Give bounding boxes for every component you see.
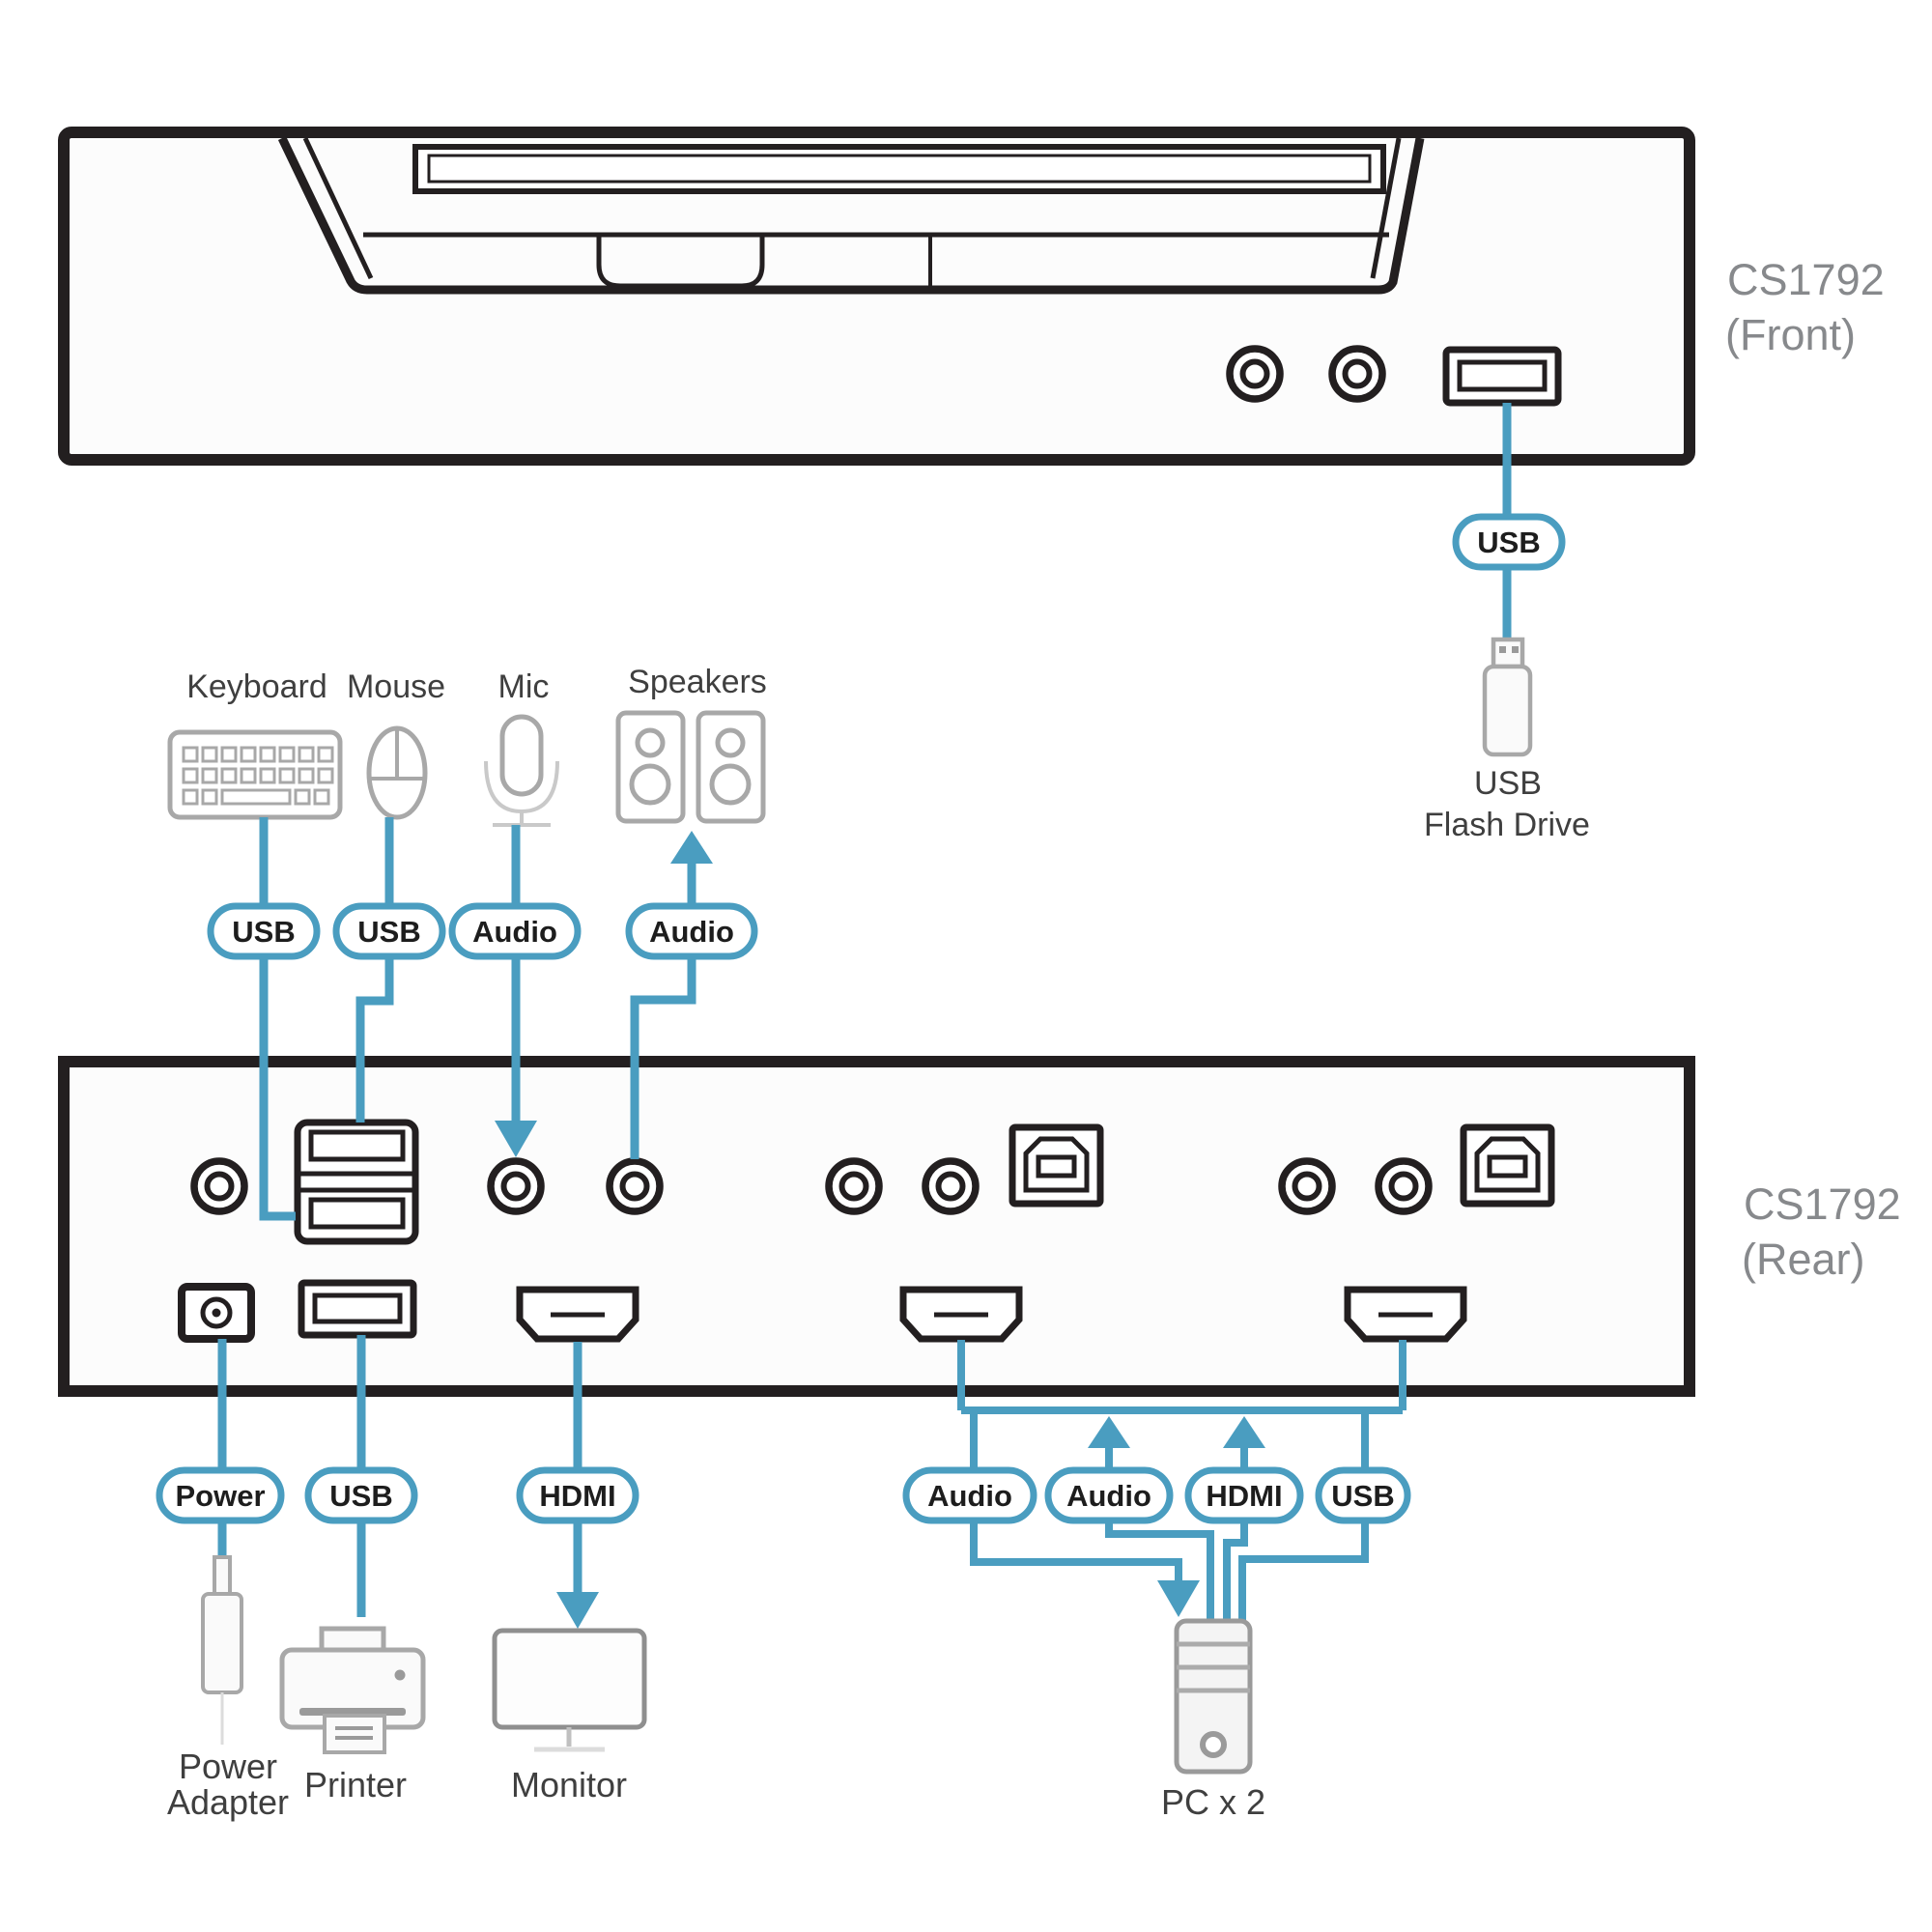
speakers-icon [618, 713, 763, 821]
pc2-usb-b-port-icon [1463, 1127, 1551, 1204]
printer-icon [282, 1629, 423, 1752]
pc-audio1-pill-label: Audio [927, 1479, 1012, 1513]
rear-usb-keyboard-mouse-ports-icon [298, 1122, 415, 1241]
front-usb-port-icon [1446, 350, 1558, 403]
usb-flash-drive-icon [1485, 639, 1530, 754]
front-usb-pill-label: USB [1477, 526, 1540, 559]
rear-view-text: (Rear) [1742, 1235, 1865, 1284]
pc2-hdmi-port-icon [1348, 1290, 1463, 1339]
pc-audio-arrow-down-icon [1157, 1580, 1200, 1617]
mic-audio-pill-label: Audio [472, 915, 557, 949]
speakers-label: Speakers [628, 664, 767, 700]
front-recess-slot [415, 147, 1383, 191]
printer-connection: USB Printer [282, 1335, 423, 1804]
pc-audio-arrow-up-icon [1088, 1416, 1130, 1448]
monitor-connection: HDMI Monitor [495, 1342, 644, 1804]
console-pills: USB USB Audio Audio [211, 906, 754, 956]
pc-pills: Audio Audio HDMI USB [906, 1470, 1407, 1520]
rear-panel-device [64, 1062, 1690, 1391]
power-adapter-icon [203, 1557, 241, 1745]
rear-jack-icon [194, 1161, 244, 1211]
speakers-arrow-up-icon [670, 831, 713, 864]
mouse-icon [369, 728, 425, 817]
speakers-audio-pill-label: Audio [649, 915, 734, 949]
monitor-label: Monitor [511, 1765, 627, 1804]
pc1-usb-b-port-icon [1012, 1127, 1100, 1204]
pc-tower-icon [1177, 1621, 1250, 1772]
power-connection: Power Power Adapter [159, 1339, 289, 1822]
pc-hdmi-arrow-up-icon [1223, 1416, 1265, 1448]
pc1-hdmi-port-icon [903, 1290, 1019, 1339]
mouse-label: Mouse [347, 668, 445, 705]
rear-speaker-jack-icon [610, 1161, 660, 1211]
power-pill-label: Power [175, 1479, 265, 1513]
monitor-arrow-down-icon [556, 1592, 599, 1629]
front-mic-jack-icon [1230, 349, 1280, 399]
rear-hdmi-console-port-icon [520, 1290, 636, 1339]
front-speaker-jack-icon [1332, 349, 1382, 399]
power-adapter-label-line1: Power [179, 1747, 277, 1786]
monitor-hdmi-pill-label: HDMI [539, 1479, 615, 1513]
printer-usb-pill-label: USB [329, 1479, 392, 1513]
front-model-text: CS1792 [1727, 255, 1885, 304]
pc-usb-pill-label: USB [1331, 1479, 1394, 1513]
front-panel-label: CS1792 (Front) [1725, 255, 1885, 359]
rear-model-text: CS1792 [1744, 1179, 1901, 1229]
flash-drive-label-line2: Flash Drive [1424, 807, 1590, 843]
pc-cables-to-tower [974, 1520, 1365, 1621]
rear-panel-label: CS1792 (Rear) [1742, 1179, 1901, 1284]
front-panel-device [64, 132, 1690, 460]
kvm-connection-diagram: CS1792 (Front) USB USB Flash Drive Keybo… [0, 0, 1932, 1932]
keyboard-label: Keyboard [186, 668, 327, 705]
power-adapter-label-line2: Adapter [167, 1782, 289, 1822]
pc-hdmi-pill-label: HDMI [1206, 1479, 1282, 1513]
pc-audio2-pill-label: Audio [1066, 1479, 1151, 1513]
printer-label: Printer [304, 1765, 407, 1804]
keyboard-usb-pill-label: USB [232, 915, 295, 949]
front-usb-connection: USB USB Flash Drive [1424, 403, 1590, 843]
mic-label: Mic [498, 668, 550, 705]
monitor-icon [495, 1631, 644, 1749]
pc-label: PC x 2 [1161, 1782, 1265, 1822]
console-cables [264, 817, 713, 906]
front-view-text: (Front) [1725, 310, 1856, 359]
flash-drive-label-line1: USB [1474, 765, 1542, 802]
mouse-usb-pill-label: USB [357, 915, 420, 949]
keyboard-icon [170, 732, 340, 817]
rear-power-jack-icon [182, 1287, 251, 1339]
mic-icon [486, 717, 557, 825]
rear-usb-printer-port-icon [301, 1283, 413, 1335]
diagram-canvas: CS1792 (Front) USB USB Flash Drive Keybo… [0, 0, 1932, 1932]
rear-mic-jack-icon [491, 1161, 541, 1211]
